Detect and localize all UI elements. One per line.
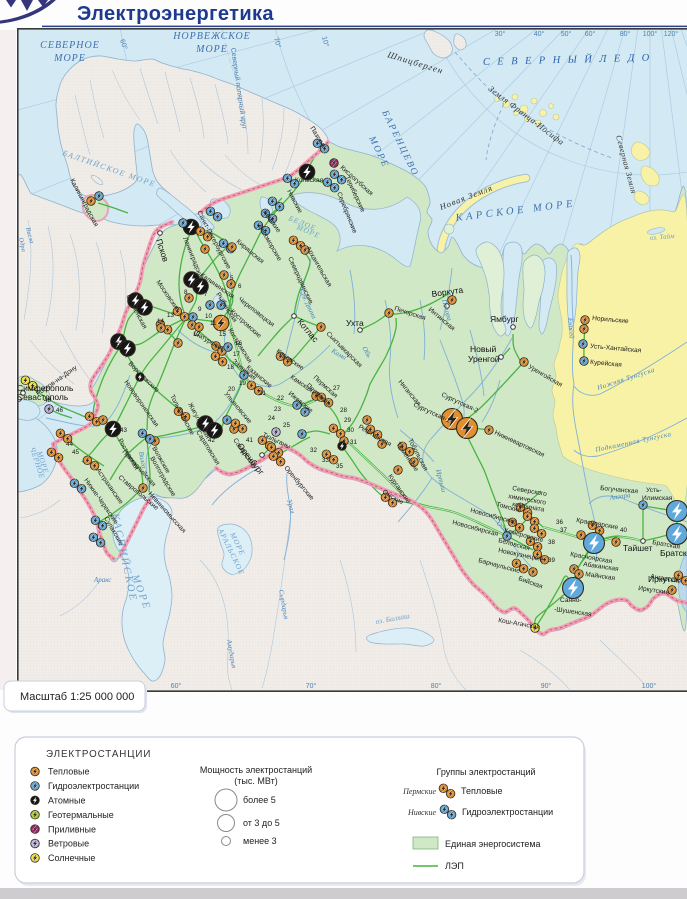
svg-text:Саяно-: Саяно- <box>560 597 582 604</box>
svg-text:Нивские: Нивские <box>407 808 436 817</box>
svg-text:7: 7 <box>204 291 208 298</box>
svg-text:36: 36 <box>556 519 563 526</box>
svg-text:Новый: Новый <box>470 344 496 354</box>
svg-text:19: 19 <box>239 380 246 387</box>
svg-text:Гидроэлектростанции: Гидроэлектростанции <box>462 807 553 817</box>
svg-text:от 3 до 5: от 3 до 5 <box>243 818 280 828</box>
svg-text:Тепловые: Тепловые <box>461 786 502 796</box>
svg-text:38: 38 <box>548 539 555 546</box>
svg-text:45: 45 <box>72 449 79 456</box>
svg-text:Ветровые: Ветровые <box>48 839 89 849</box>
svg-text:5: 5 <box>230 275 234 282</box>
svg-text:Тайшет: Тайшет <box>623 543 653 553</box>
svg-text:8: 8 <box>184 289 188 296</box>
svg-text:Илимская: Илимская <box>642 495 673 502</box>
svg-text:Единая энергосистема: Единая энергосистема <box>445 839 541 849</box>
svg-text:Масштаб 1:25 000 000: Масштаб 1:25 000 000 <box>20 691 134 703</box>
svg-text:21: 21 <box>259 390 266 397</box>
svg-text:35: 35 <box>336 463 343 470</box>
svg-text:22: 22 <box>277 395 284 402</box>
svg-text:120°: 120° <box>664 30 679 38</box>
svg-text:ЛЭП: ЛЭП <box>445 861 464 871</box>
svg-text:Приливные: Приливные <box>48 824 96 834</box>
svg-text:МОРЕ: МОРЕ <box>195 44 228 55</box>
svg-text:Ухта: Ухта <box>346 318 364 328</box>
svg-text:23: 23 <box>274 406 281 413</box>
svg-text:Кольская: Кольская <box>295 177 324 184</box>
svg-text:80°: 80° <box>431 682 442 690</box>
svg-text:менее 3: менее 3 <box>243 836 277 846</box>
svg-text:100°: 100° <box>643 30 658 38</box>
svg-text:100°: 100° <box>642 682 657 690</box>
svg-text:33: 33 <box>322 457 329 464</box>
svg-text:Мощность электростанций: Мощность электростанций <box>200 765 312 775</box>
svg-text:32: 32 <box>310 447 317 454</box>
svg-text:Уренгой: Уренгой <box>468 354 500 364</box>
svg-text:44: 44 <box>66 441 73 448</box>
svg-text:14: 14 <box>157 318 164 325</box>
svg-text:Усть-: Усть- <box>646 487 662 494</box>
svg-text:10: 10 <box>205 313 212 320</box>
svg-text:Тепловые: Тепловые <box>48 767 89 777</box>
svg-text:Геотермальные: Геотермальные <box>48 810 114 820</box>
svg-text:90°: 90° <box>541 682 552 690</box>
svg-text:ЭЛЕКТРОСТАНЦИИ: ЭЛЕКТРОСТАНЦИИ <box>46 749 151 760</box>
svg-text:6: 6 <box>238 283 242 290</box>
svg-text:25: 25 <box>283 422 290 429</box>
svg-text:70°: 70° <box>306 682 317 690</box>
svg-text:Гидроэлектростанции: Гидроэлектростанции <box>48 781 139 791</box>
svg-text:30: 30 <box>347 427 354 434</box>
svg-text:13: 13 <box>167 312 174 319</box>
svg-text:НОРВЕЖСКОЕ: НОРВЕЖСКОЕ <box>172 31 251 42</box>
svg-text:Атомные: Атомные <box>48 796 85 806</box>
svg-text:24: 24 <box>268 415 275 422</box>
svg-text:СЕВЕРНОЕ: СЕВЕРНОЕ <box>40 40 100 51</box>
svg-text:17: 17 <box>233 351 240 358</box>
svg-text:31: 31 <box>350 439 357 446</box>
svg-text:15: 15 <box>219 331 226 338</box>
svg-text:Солнечные: Солнечные <box>48 853 95 863</box>
svg-text:Ямбург: Ямбург <box>490 314 519 324</box>
svg-text:80°: 80° <box>620 30 631 38</box>
svg-text:Электроэнергетика: Электроэнергетика <box>77 3 274 25</box>
svg-text:МОРЕ: МОРЕ <box>53 53 86 64</box>
svg-text:46: 46 <box>56 407 63 414</box>
svg-text:Пермские: Пермские <box>402 787 436 796</box>
svg-text:60°: 60° <box>171 682 182 690</box>
svg-text:37: 37 <box>560 527 567 534</box>
svg-text:40°: 40° <box>534 30 545 38</box>
svg-text:41: 41 <box>246 437 253 444</box>
svg-text:30°: 30° <box>495 30 506 38</box>
svg-text:29: 29 <box>344 417 351 424</box>
svg-text:39: 39 <box>548 557 555 564</box>
svg-text:43: 43 <box>120 427 127 434</box>
svg-text:(тыс. МВт): (тыс. МВт) <box>234 776 277 786</box>
svg-text:Аракс: Аракс <box>93 576 112 584</box>
svg-text:более 5: более 5 <box>243 795 276 805</box>
svg-text:9: 9 <box>198 306 202 313</box>
svg-text:50°: 50° <box>561 30 572 38</box>
svg-text:28: 28 <box>340 407 347 414</box>
svg-text:40: 40 <box>620 527 627 534</box>
svg-text:Группы электростанций: Группы электростанций <box>436 767 535 777</box>
svg-text:11: 11 <box>210 320 217 327</box>
svg-text:60°: 60° <box>585 30 596 38</box>
